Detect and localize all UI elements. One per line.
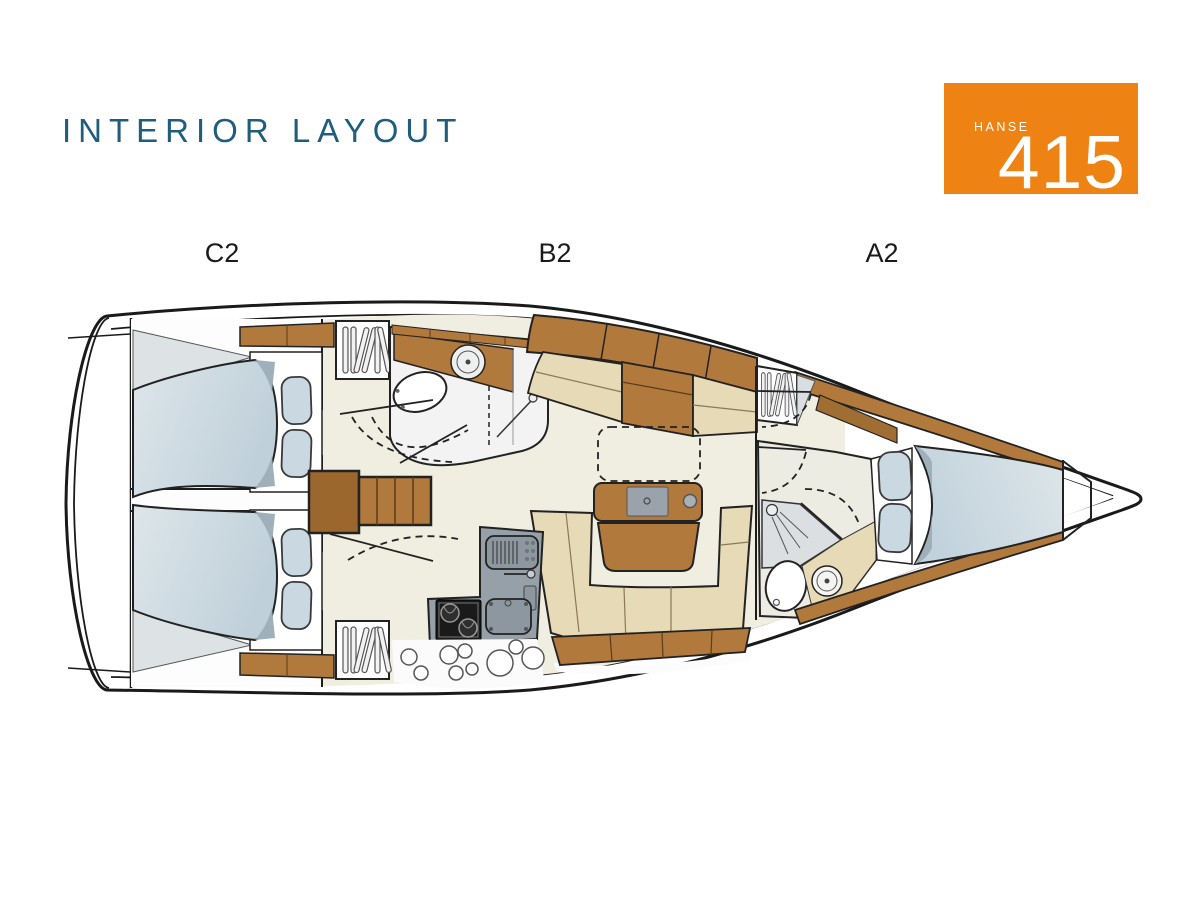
sideboard-panel	[622, 362, 693, 436]
basin-drain	[466, 360, 471, 365]
basin-drain	[825, 579, 830, 584]
sink-unit	[486, 536, 538, 569]
boat-floorplan	[0, 0, 1200, 900]
shower-drain-icon	[767, 505, 778, 516]
pillow	[878, 503, 912, 553]
pillow	[878, 451, 912, 501]
table-leaf	[598, 523, 699, 571]
faucet-base	[527, 570, 535, 578]
table-insert	[627, 487, 668, 516]
aft-head	[388, 325, 548, 465]
pillow	[281, 376, 312, 424]
saloon-table	[594, 483, 702, 571]
door-leaf	[758, 391, 811, 392]
mast-post	[684, 495, 697, 508]
pillow	[281, 430, 312, 478]
companionway-steps	[309, 471, 431, 533]
pillow	[281, 528, 312, 576]
page: INTERIOR LAYOUT HANSE 415 C2 B2 A2	[0, 0, 1200, 900]
pillow	[281, 582, 312, 630]
step-landing	[309, 471, 359, 533]
sink-drainer	[493, 541, 517, 564]
